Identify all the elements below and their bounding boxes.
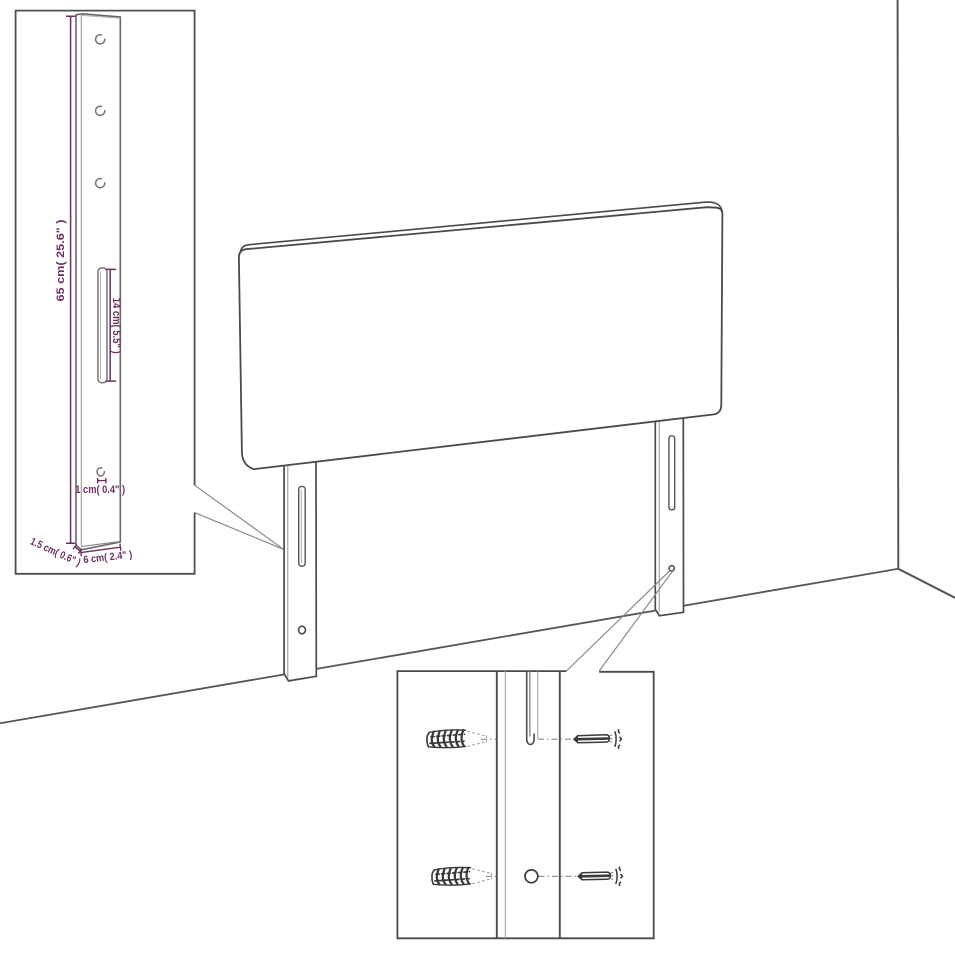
svg-text:1 cm( 0.4" ): 1 cm( 0.4" ) bbox=[75, 484, 125, 496]
svg-text:14 cm( 5.5" ): 14 cm( 5.5" ) bbox=[110, 298, 122, 354]
svg-text:65 cm( 25.6" ): 65 cm( 25.6" ) bbox=[55, 220, 67, 302]
